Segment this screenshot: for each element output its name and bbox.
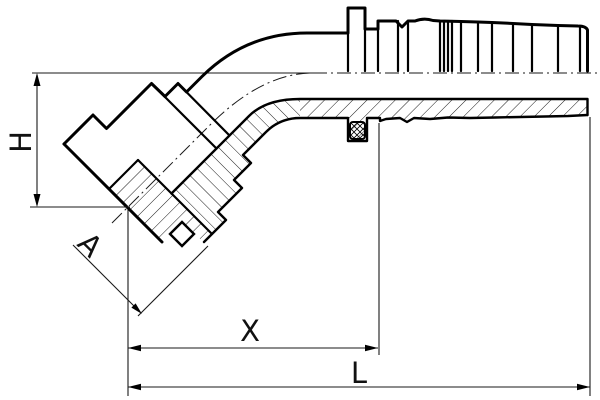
barb-edges (348, 21, 580, 71)
dim-label-H: H (4, 131, 38, 153)
a-extension-line (138, 246, 208, 316)
collar-back-edge (152, 84, 217, 149)
dim-label-X: X (240, 314, 260, 348)
technical-drawing-page: H A X L (0, 0, 600, 400)
x-arrow-right (365, 345, 378, 351)
dim-label-L: L (351, 356, 367, 390)
h-arrow-down (34, 194, 41, 207)
fitting-drawing-canvas: H A X L (0, 0, 600, 400)
x-arrow-left (128, 345, 141, 351)
hatch-nipple-band (300, 99, 588, 141)
l-arrow-right (577, 384, 590, 390)
h-arrow-up (34, 73, 41, 86)
socket-front-edge (178, 84, 230, 136)
centerlines (32, 73, 597, 223)
o-ring-seal (350, 122, 365, 139)
upper-silhouette-path (64, 8, 588, 144)
dimension-labels: H A X L (4, 131, 367, 390)
dim-label-A: A (71, 226, 109, 264)
l-arrow-left (128, 384, 141, 390)
